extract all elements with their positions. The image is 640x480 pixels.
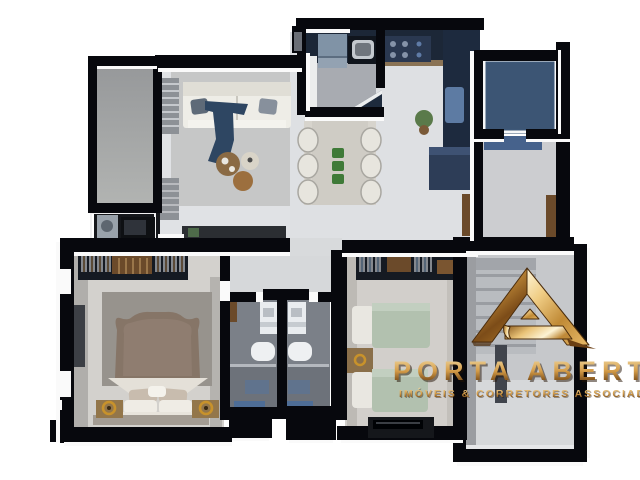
svg-text:IMÓVEIS & CORRETORES ASSOCIADO: IMÓVEIS & CORRETORES ASSOCIADOS — [399, 387, 640, 400]
svg-text:PORTA ABERTA: PORTA ABERTA — [393, 356, 640, 386]
